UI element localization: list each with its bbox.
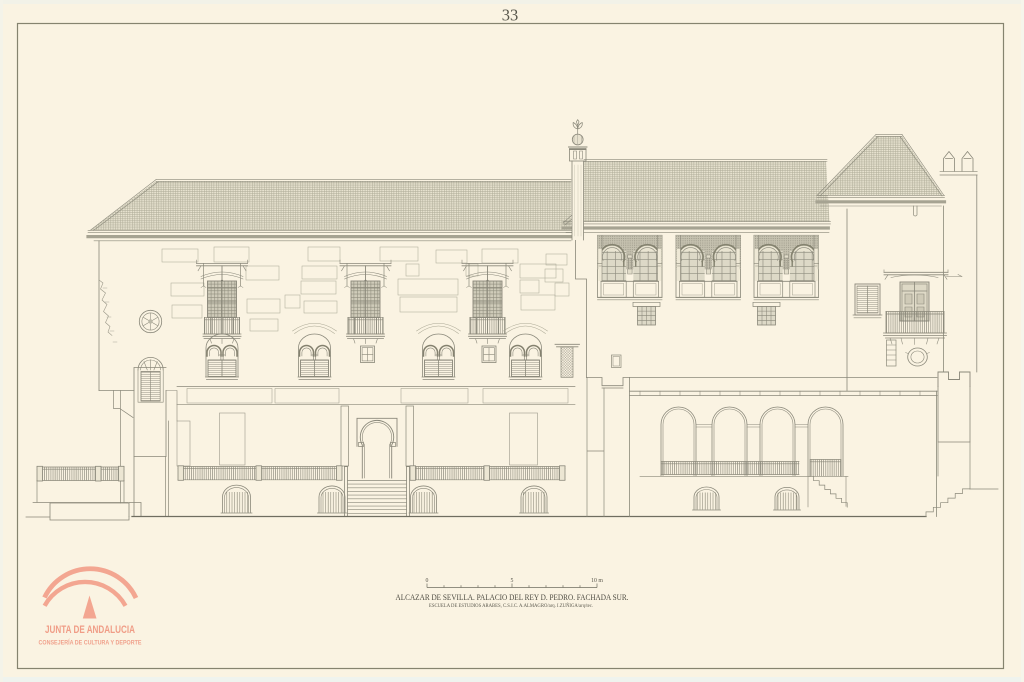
svg-text:5: 5 [511, 578, 514, 584]
svg-text:10 m: 10 m [591, 578, 603, 584]
svg-text:ESCUELA DE ESTUDIOS ARABES, C.: ESCUELA DE ESTUDIOS ARABES, C.S.I.C. A.A… [429, 601, 593, 609]
svg-text:CONSEJERÍA DE CULTURA Y DEPORT: CONSEJERÍA DE CULTURA Y DEPORTE [39, 637, 142, 646]
svg-text:33: 33 [502, 6, 519, 25]
svg-text:ALCAZAR DE SEVILLA. PALACIO DE: ALCAZAR DE SEVILLA. PALACIO DEL REY D. P… [396, 593, 629, 602]
svg-text:JUNTA DE ANDALUCIA: JUNTA DE ANDALUCIA [45, 624, 135, 636]
svg-text:0: 0 [426, 578, 429, 584]
